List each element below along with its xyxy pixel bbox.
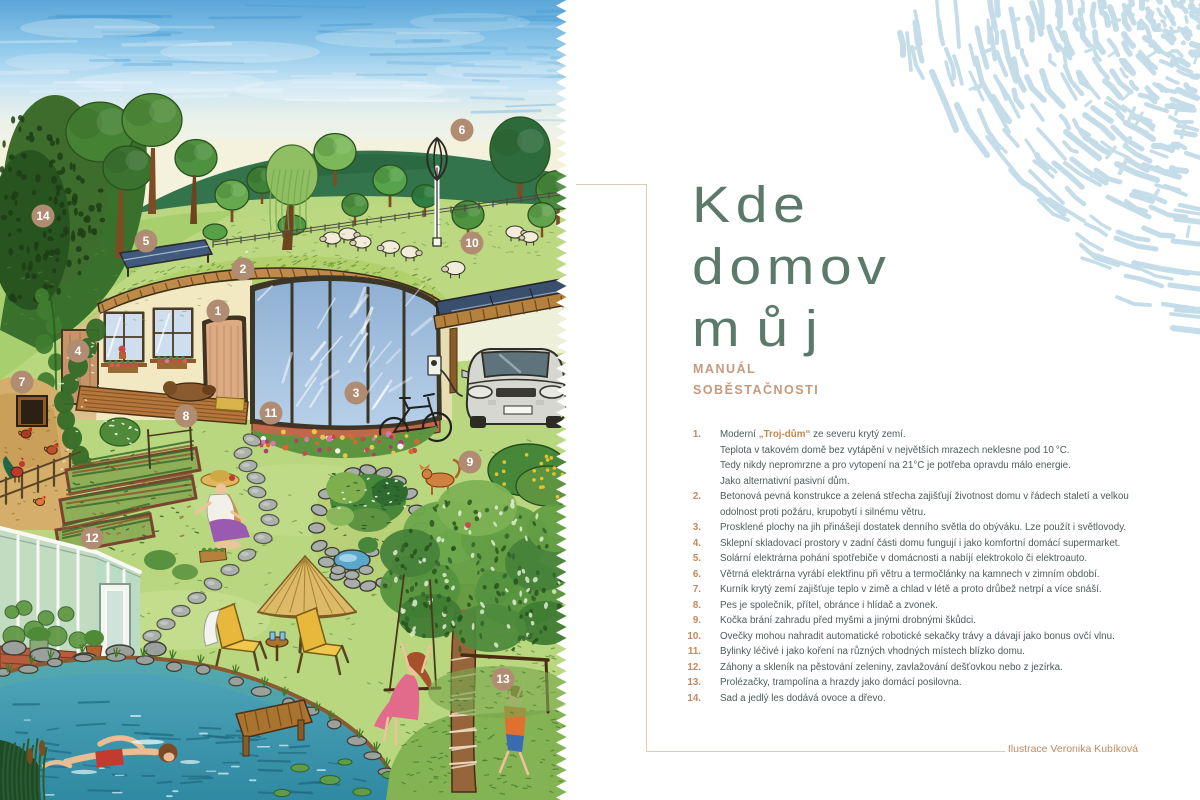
svg-text:4: 4 <box>75 344 82 358</box>
svg-text:2: 2 <box>240 262 247 276</box>
svg-text:8: 8 <box>183 409 190 423</box>
svg-text:12: 12 <box>85 531 99 545</box>
svg-text:5: 5 <box>143 234 150 248</box>
svg-text:11: 11 <box>265 406 278 420</box>
svg-text:3: 3 <box>353 386 360 400</box>
svg-text:13: 13 <box>496 672 510 686</box>
svg-text:14: 14 <box>36 209 50 223</box>
svg-text:9: 9 <box>467 455 474 469</box>
svg-text:6: 6 <box>459 123 466 137</box>
svg-text:7: 7 <box>19 375 26 389</box>
svg-text:10: 10 <box>465 236 479 250</box>
svg-text:1: 1 <box>215 304 222 318</box>
